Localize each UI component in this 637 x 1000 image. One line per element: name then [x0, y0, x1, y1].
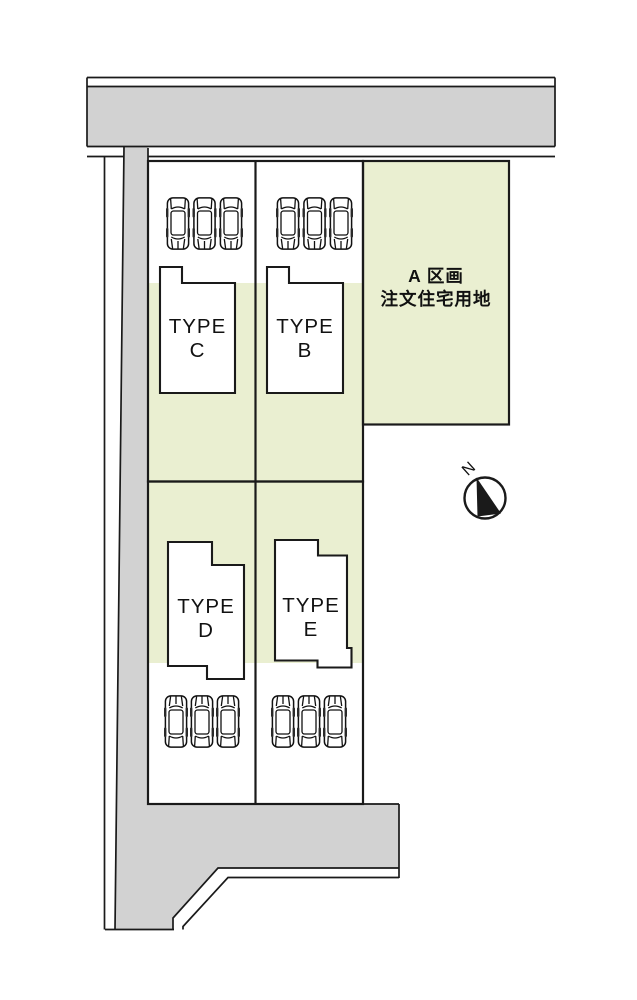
- house-b-label-line1: TYPE: [276, 315, 334, 338]
- car-icon: [303, 198, 327, 249]
- car-icon: [271, 696, 295, 747]
- plot-a-label-line2: 注文住宅用地: [381, 289, 492, 309]
- parking-row-b: [276, 198, 353, 249]
- house-d-label-line2: D: [198, 619, 214, 642]
- bottom-road-sidewalk-line: [183, 878, 399, 930]
- car-icon: [329, 198, 353, 249]
- car-icon: [216, 696, 240, 747]
- top-road: [87, 87, 555, 147]
- parking-row-c: [166, 198, 243, 249]
- car-icon: [297, 696, 321, 747]
- house-b-label-line2: B: [298, 339, 313, 362]
- car-icon: [276, 198, 300, 249]
- car-icon: [166, 198, 190, 249]
- parking-row-d: [164, 696, 240, 747]
- house-e-label-line2: E: [304, 618, 319, 641]
- car-icon: [164, 696, 188, 747]
- parking-row-e: [271, 696, 347, 747]
- north-arrow-icon: [477, 478, 502, 517]
- house-d-label-line1: TYPE: [177, 595, 235, 618]
- plot-a-label-line1: A 区画: [408, 266, 464, 286]
- car-icon: [190, 696, 214, 747]
- car-icon: [193, 198, 217, 249]
- car-icon: [323, 696, 347, 747]
- house-c-label-line2: C: [190, 339, 206, 362]
- compass: N: [459, 459, 505, 519]
- house-c-label-line1: TYPE: [169, 315, 227, 338]
- car-icon: [219, 198, 243, 249]
- site-plan: TYPE C TYPE B TYPE D TYPE E A 区画 注文住宅用地 …: [0, 0, 637, 1000]
- north-label: N: [459, 459, 479, 479]
- house-e-label-line1: TYPE: [282, 594, 340, 617]
